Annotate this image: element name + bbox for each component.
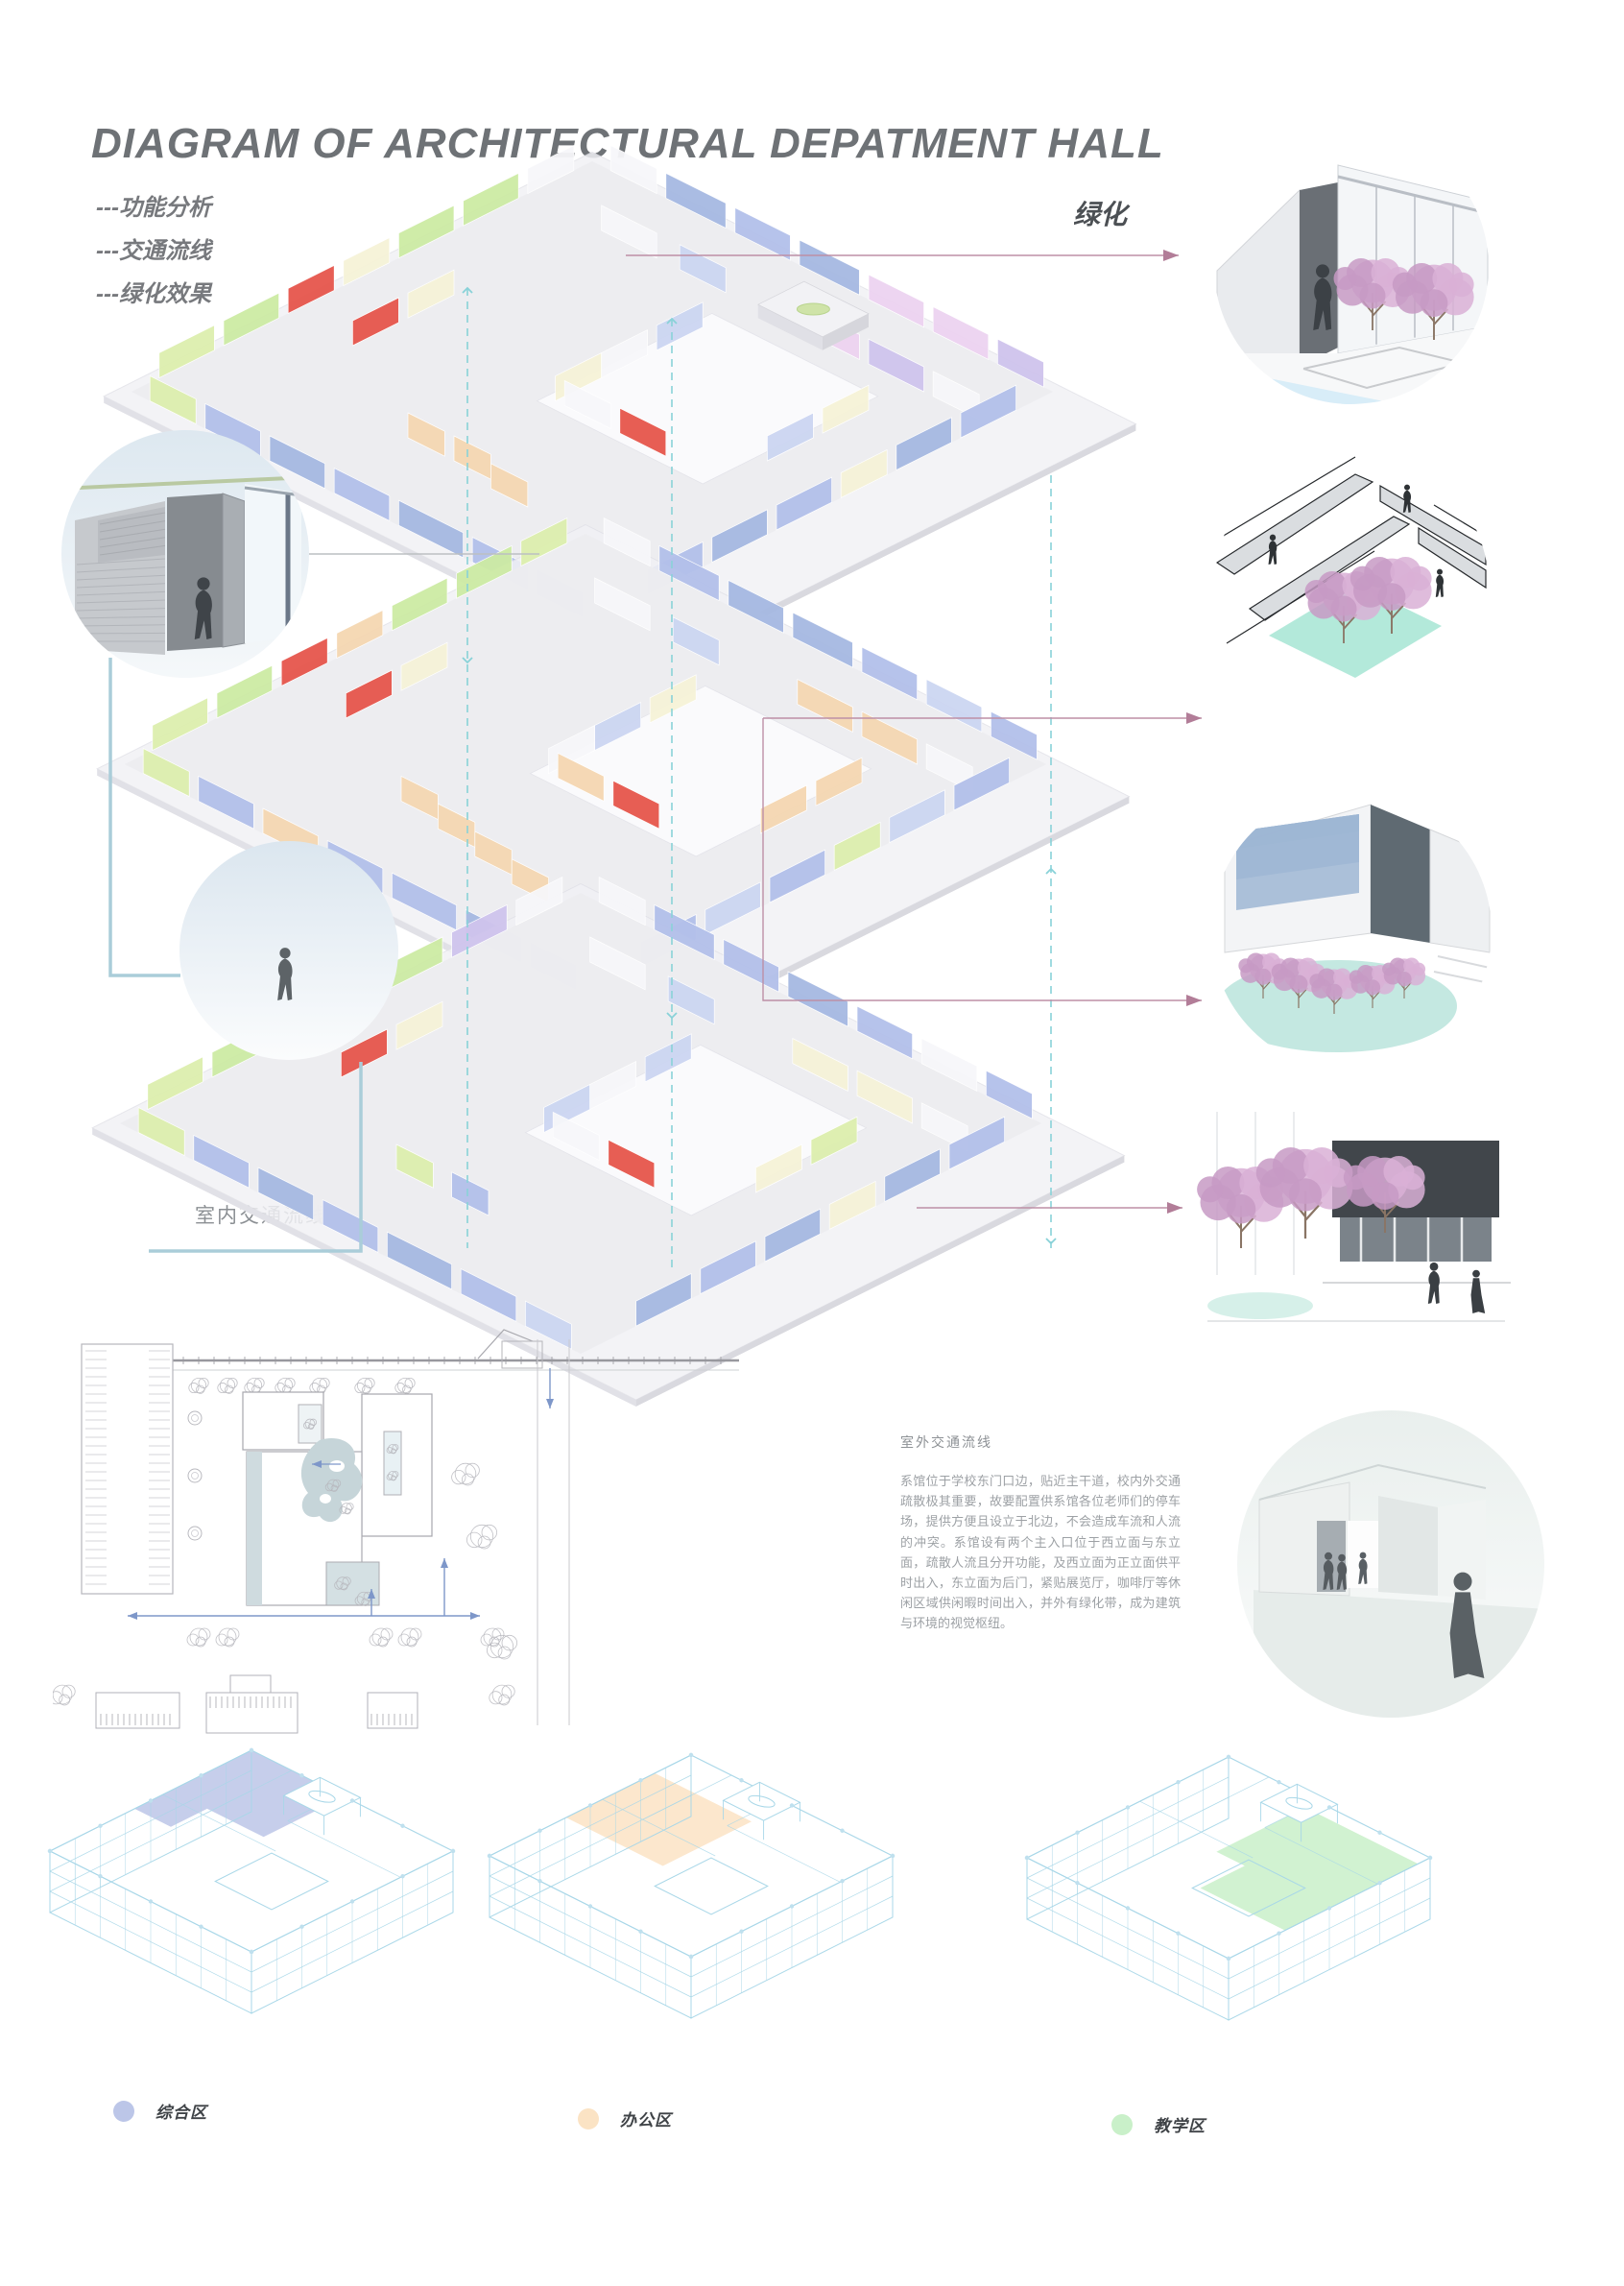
wireframe-zone-office — [478, 1728, 919, 2103]
walking-person-photo — [178, 839, 400, 1062]
legend-greening-effect: ---绿化效果 — [96, 273, 211, 316]
street-canopy-render — [1188, 1073, 1515, 1344]
indoor-circulation-label: 室内交通流线 — [195, 1200, 327, 1229]
zone-legend-general: 综合区 — [113, 2099, 207, 2123]
teaching-zone-label: 教学区 — [1154, 2112, 1206, 2136]
analysis-legend: ---功能分析 ---交通流线 ---绿化效果 — [96, 186, 211, 316]
atrium-courtyard-render — [1211, 447, 1492, 728]
wireframe-zone-teaching — [1015, 1730, 1457, 2105]
office-zone-label: 办公区 — [620, 2106, 672, 2130]
office-zone-dot — [578, 2108, 599, 2130]
presentation-board: DIAGRAM OF ARCHITECTURAL DEPATMENT HALL … — [0, 0, 1624, 2286]
page-title: DIAGRAM OF ARCHITECTURAL DEPATMENT HALL — [91, 120, 1164, 168]
greening-label: 绿化 — [1073, 194, 1127, 232]
outdoor-circulation-text: 室外交通流线 系馆位于学校东门口边，贴近主干道，校内外交通疏散极其重要，故要配置… — [900, 1432, 1181, 1634]
site-plan-drawing — [53, 1311, 864, 1743]
pink-arrow — [626, 250, 1179, 261]
outdoor-circulation-heading: 室外交通流线 — [900, 1432, 1181, 1452]
teaching-zone-dot — [1111, 2114, 1133, 2135]
zone-legend-teaching: 教学区 — [1111, 2112, 1206, 2136]
legend-circulation: ---交通流线 — [96, 229, 211, 273]
pink-arrow — [763, 712, 1202, 724]
facade-garden-render — [1207, 787, 1495, 1075]
pink-arrow — [763, 718, 1202, 1006]
stair-interior-photo — [60, 428, 311, 680]
outdoor-circulation-body: 系馆位于学校东门口边，贴近主干道，校内外交通疏散极其重要，故要配置供系馆各位老师… — [900, 1471, 1181, 1634]
greening-entrance-render — [1211, 127, 1492, 407]
lobby-interior-render — [1234, 1408, 1547, 1721]
zone-legend-office: 办公区 — [578, 2106, 672, 2130]
wireframe-zone-general — [38, 1723, 480, 2098]
legend-function-analysis: ---功能分析 — [96, 186, 211, 229]
general-zone-dot — [113, 2101, 134, 2122]
pink-arrow — [917, 1202, 1182, 1214]
general-zone-label: 综合区 — [155, 2099, 207, 2123]
